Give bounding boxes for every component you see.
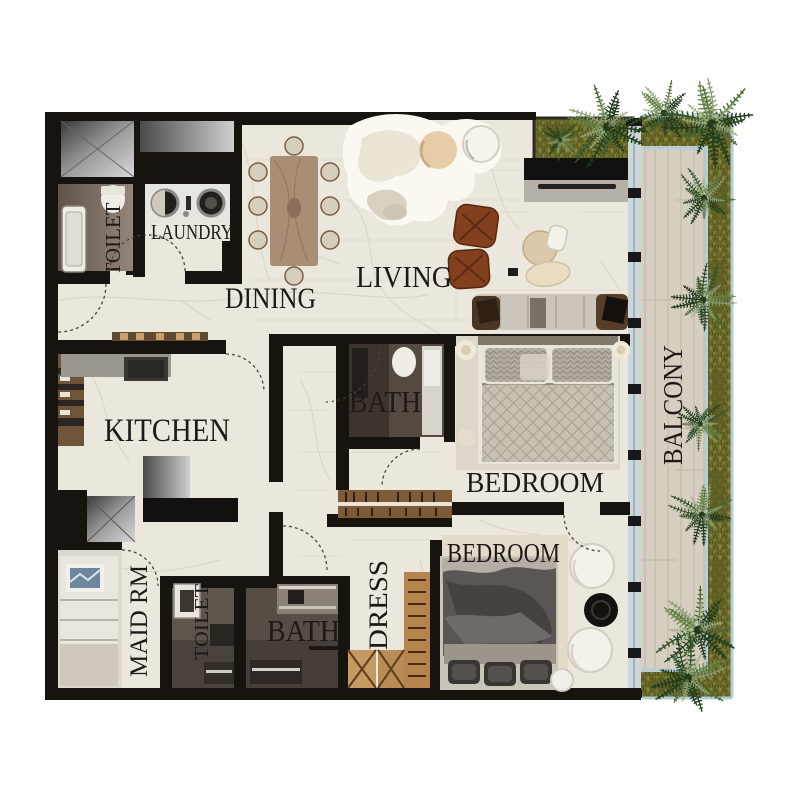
svg-text:BATH: BATH	[267, 613, 340, 648]
svg-text:TOILET: TOILET	[101, 202, 125, 275]
svg-text:BEDROOM: BEDROOM	[447, 538, 560, 568]
svg-text:LAUNDRY: LAUNDRY	[151, 220, 233, 244]
svg-text:KITCHEN: KITCHEN	[104, 413, 230, 449]
svg-text:DINING: DINING	[225, 282, 316, 315]
svg-text:MAID RM: MAID RM	[126, 565, 153, 677]
svg-text:TOILET: TOILET	[191, 584, 213, 660]
svg-text:LIVING: LIVING	[356, 259, 452, 294]
svg-text:BEDROOM: BEDROOM	[466, 467, 604, 499]
svg-text:BALCONY: BALCONY	[658, 345, 688, 465]
svg-text:DRESS: DRESS	[364, 560, 393, 650]
